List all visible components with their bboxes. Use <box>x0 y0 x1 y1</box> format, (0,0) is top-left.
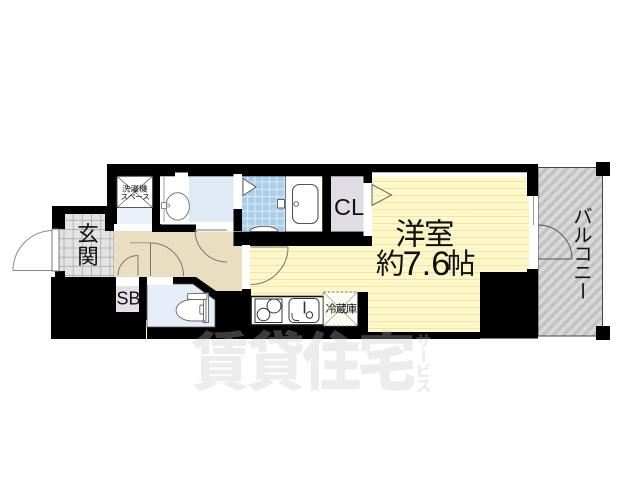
svg-text:CL: CL <box>334 194 364 220</box>
svg-text:SB: SB <box>117 289 141 309</box>
svg-text:7.6: 7.6 <box>403 245 451 283</box>
